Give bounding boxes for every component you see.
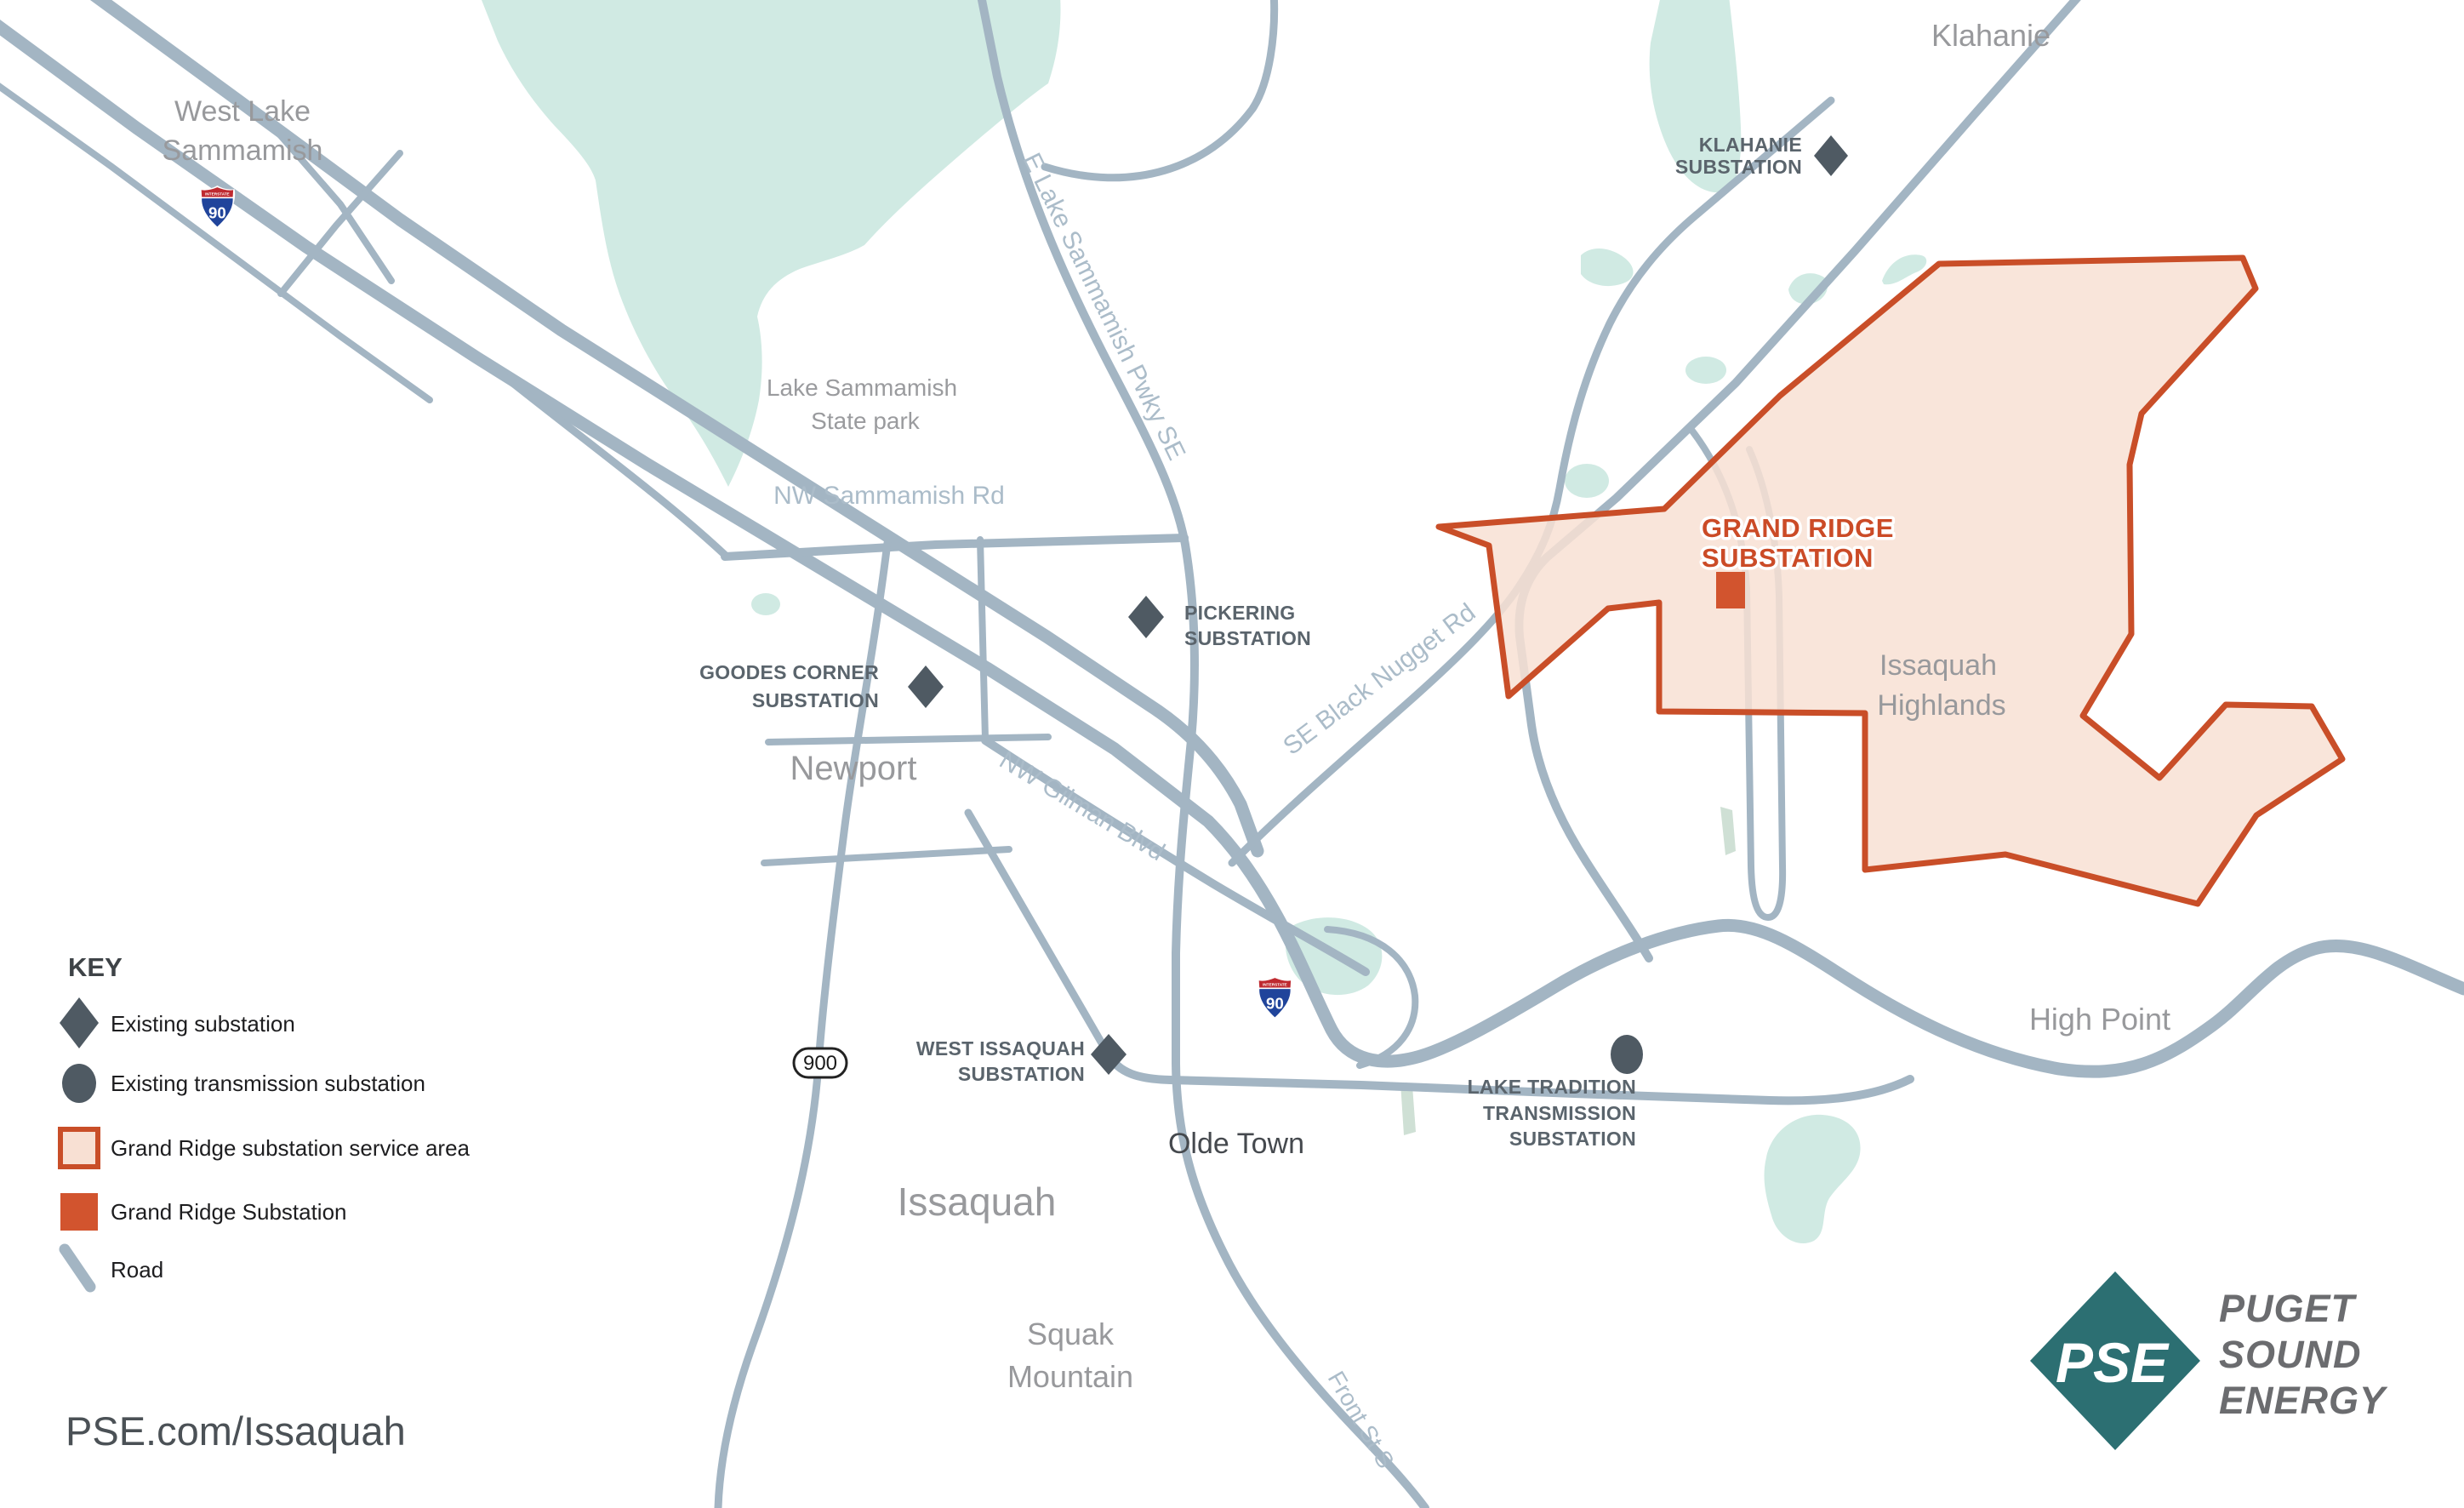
- e-lake-sammamish-pkwy-label: E Lake Sammamish Pwky SE: [1018, 149, 1191, 465]
- legend-existing-substation-label: Existing substation: [111, 1011, 295, 1037]
- road-newport-street-2: [980, 540, 985, 739]
- sr900-number-text: 900: [803, 1052, 837, 1075]
- front-st-s-label: Front St S: [1323, 1367, 1400, 1473]
- road-newport-street-3: [764, 849, 1009, 863]
- pse-logo-word-line1: PUGET: [2219, 1287, 2358, 1330]
- issaquah-highlands-label-line1: Issaquah: [1879, 649, 1997, 682]
- lake-tradition-label-line2: TRANSMISSION: [1483, 1102, 1636, 1124]
- pickering-substation-marker: [1128, 596, 1164, 638]
- i90-interstate-text: INTERSTATE: [205, 191, 230, 196]
- pond-small-d: [1565, 464, 1609, 498]
- legend-service-area-icon: [60, 1129, 98, 1167]
- pond-lake-tradition: [1765, 1115, 1861, 1243]
- legend-transmission-substation-label: Existing transmission substation: [111, 1071, 425, 1096]
- i90-shield-issaquah: INTERSTATE 90: [1258, 976, 1293, 1019]
- i90-interstate-text-2: INTERSTATE: [1263, 982, 1287, 986]
- klahanie-substation-label-line1: KLAHANIE: [1699, 134, 1802, 156]
- lake-tradition-label-line1: LAKE TRADITION: [1468, 1076, 1636, 1098]
- west-lake-sammamish-label-line1: West Lake: [174, 95, 311, 128]
- squak-mountain-label-line1: Squak: [1027, 1317, 1115, 1351]
- lake-tradition-label-line3: SUBSTATION: [1509, 1128, 1636, 1150]
- pond-small-a: [1581, 248, 1634, 286]
- legend: KEY Existing substation Existing transmi…: [60, 952, 471, 1287]
- legend-existing-substation-icon: [60, 997, 99, 1048]
- road-west-issaquah-diag: [968, 813, 1108, 1054]
- goodes-corner-substation-marker: [908, 665, 944, 708]
- issaquah-highlands-label-line2: Highlands: [1877, 689, 2005, 722]
- pse-logo-word-line3: ENERGY: [2219, 1379, 2388, 1422]
- green-sliver-a: [1720, 807, 1736, 855]
- pse-logo-monogram: PSE: [2056, 1331, 2170, 1394]
- issaquah-label: Issaquah: [898, 1180, 1057, 1224]
- goodes-corner-substation-label-line2: SUBSTATION: [752, 689, 879, 711]
- grand-ridge-substation-marker: [1716, 572, 1745, 608]
- sr900-shield: 900: [794, 1048, 847, 1077]
- nw-sammamish-rd-label: NW Sammamish Rd: [773, 482, 1005, 510]
- map-page: INTERSTATE 90 INTERSTATE 90 900 West Lak…: [0, 0, 2464, 1508]
- legend-grand-ridge-label: Grand Ridge Substation: [111, 1199, 347, 1225]
- i90-number-text-2: 90: [1266, 995, 1284, 1013]
- lake-tradition-substation-marker: [1611, 1035, 1643, 1074]
- grand-ridge-service-area: [1439, 258, 2342, 904]
- legend-road-label: Road: [111, 1257, 163, 1282]
- pond-small-f: [751, 593, 780, 615]
- state-park-label-line1: Lake Sammamish: [767, 374, 957, 401]
- map-canvas: INTERSTATE 90 INTERSTATE 90 900 West Lak…: [0, 0, 2464, 1508]
- road-newport-street-1: [768, 737, 1048, 742]
- goodes-corner-substation-label-line1: GOODES CORNER: [699, 661, 879, 683]
- squak-mountain-label-line2: Mountain: [1007, 1359, 1133, 1394]
- pickering-substation-label-line1: PICKERING: [1184, 602, 1296, 624]
- olde-town-label: Olde Town: [1168, 1128, 1304, 1160]
- road-top-loop: [1045, 0, 1275, 178]
- pond-small-e: [1685, 357, 1726, 384]
- legend-title: KEY: [68, 952, 123, 982]
- grand-ridge-substation-label-line1: GRAND RIDGE: [1702, 513, 1894, 543]
- high-point-label: High Point: [2029, 1002, 2170, 1037]
- i90-number-text: 90: [208, 204, 226, 222]
- legend-grand-ridge-icon: [60, 1193, 98, 1231]
- i90-shield-northwest: INTERSTATE 90: [200, 186, 236, 228]
- road-900-route: [718, 543, 887, 1508]
- pse-logo-word-line2: SOUND: [2219, 1333, 2362, 1376]
- pse-logo: PSE PUGET SOUND ENERGY: [2030, 1271, 2388, 1450]
- grand-ridge-substation-label-line2: SUBSTATION: [1702, 543, 1874, 573]
- newport-label: Newport: [790, 750, 917, 787]
- klahanie-label: Klahanie: [1931, 18, 2050, 53]
- state-park-label-line2: State park: [811, 408, 921, 434]
- footer-url: PSE.com/Issaquah: [66, 1408, 406, 1454]
- se-black-nugget-rd-label: SE Black Nugget Rd: [1278, 598, 1480, 761]
- west-issaquah-substation-label-line2: SUBSTATION: [958, 1063, 1085, 1085]
- west-lake-sammamish-label-line2: Sammamish: [163, 134, 323, 167]
- klahanie-substation-label-line2: SUBSTATION: [1675, 156, 1802, 178]
- legend-service-area-label: Grand Ridge substation service area: [111, 1135, 471, 1161]
- west-issaquah-substation-label-line1: WEST ISSAQUAH: [916, 1037, 1085, 1060]
- legend-road-icon: [65, 1249, 90, 1287]
- klahanie-substation-marker: [1814, 135, 1848, 176]
- legend-transmission-substation-icon: [62, 1064, 96, 1103]
- pickering-substation-label-line2: SUBSTATION: [1184, 627, 1311, 649]
